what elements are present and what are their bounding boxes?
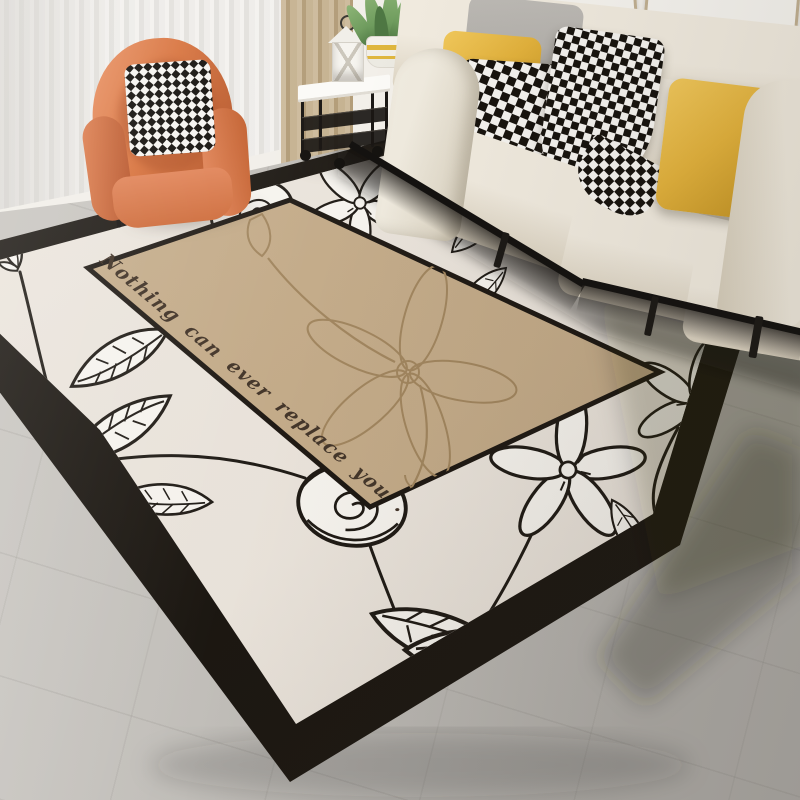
living-room-scene: Nothing can ever replace you .: [0, 0, 800, 800]
candle-lantern: [332, 42, 364, 82]
diamond-pattern: [124, 59, 216, 157]
floor-shadow-bottom: [150, 733, 690, 797]
caster-wheel: [300, 150, 311, 161]
diamond-pattern-pillow: [124, 59, 216, 157]
